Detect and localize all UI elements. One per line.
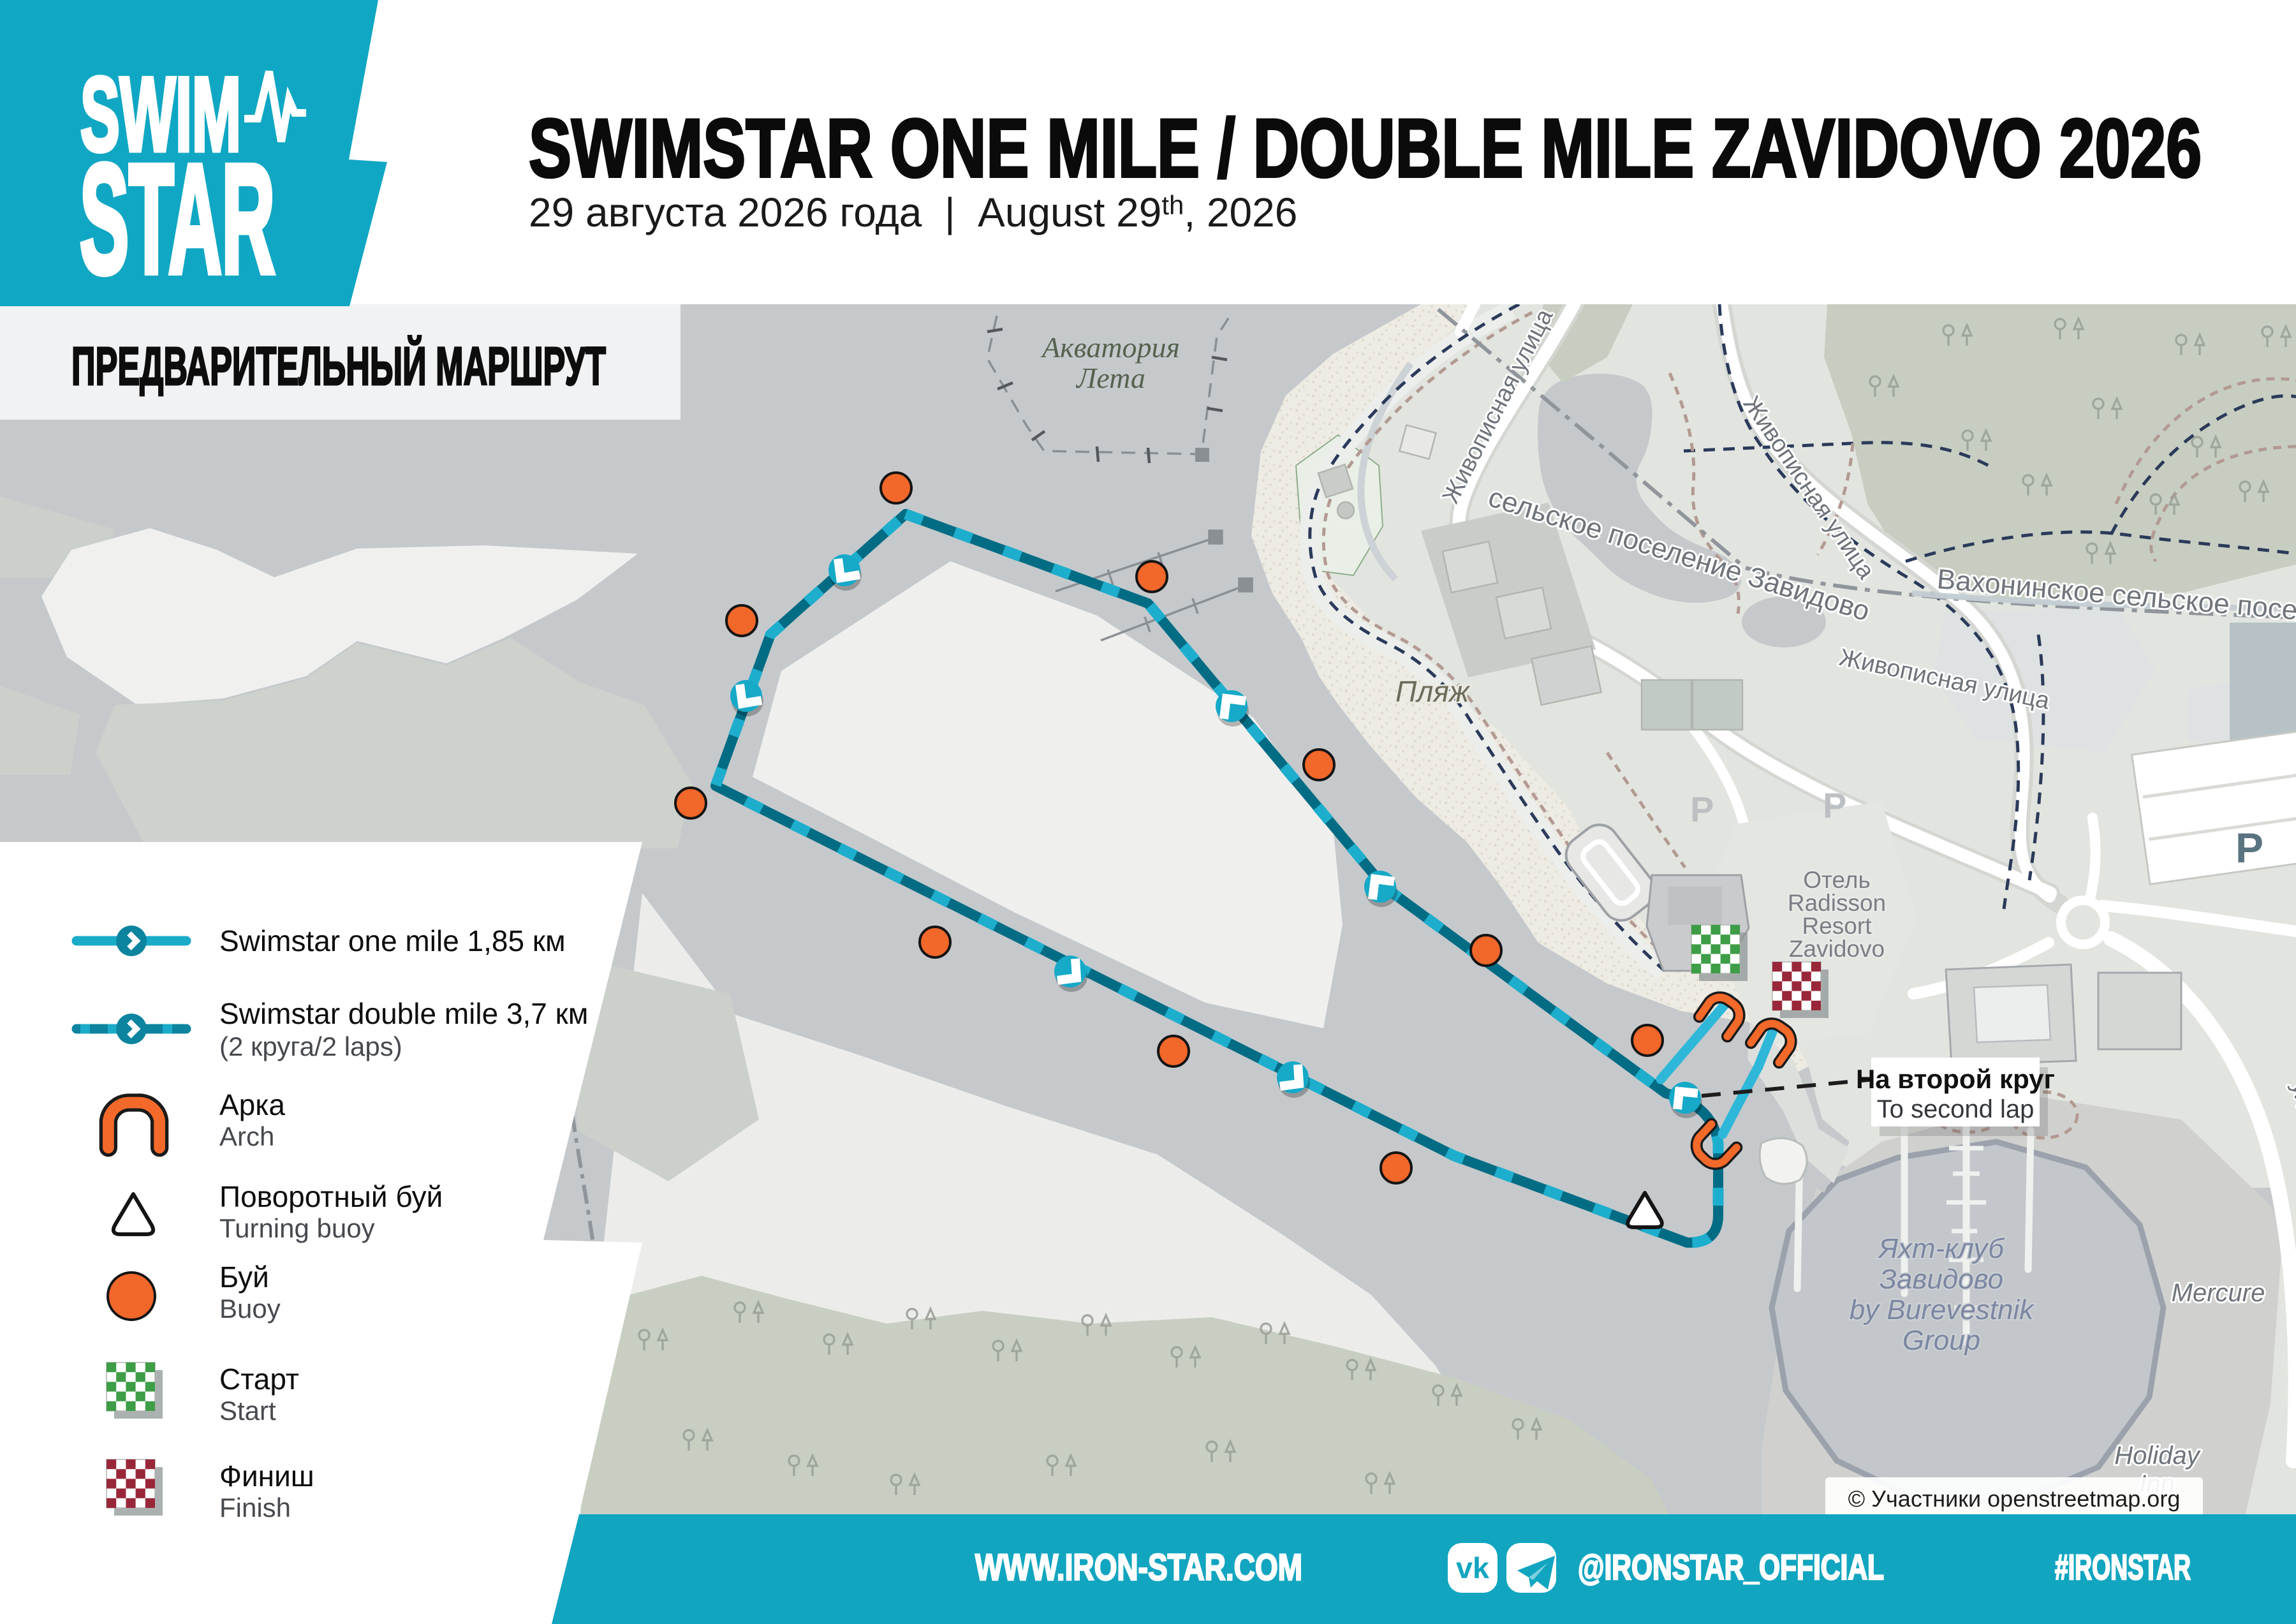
svg-text:Group: Group (1902, 1325, 1980, 1356)
svg-text:STAR: STAR (80, 133, 275, 306)
svg-text:Start: Start (219, 1396, 276, 1426)
svg-text:Буй: Буй (219, 1260, 269, 1294)
svg-text:Buoy: Buoy (219, 1294, 281, 1324)
svg-text:Zavidovo: Zavidovo (1789, 936, 1885, 962)
svg-text:Лета: Лета (1075, 362, 1145, 394)
svg-text:#IRONSTAR: #IRONSTAR (2055, 1547, 2191, 1587)
svg-text:Финиш: Финиш (219, 1459, 314, 1493)
svg-text:WWW.IRON-STAR.COM: WWW.IRON-STAR.COM (975, 1547, 1302, 1588)
svg-text:Арка: Арка (219, 1088, 285, 1121)
svg-text:Swimstar one mile 1,85 км: Swimstar one mile 1,85 км (219, 924, 566, 957)
svg-text:Старт: Старт (219, 1362, 299, 1396)
svg-text:To second lap: To second lap (1877, 1095, 2035, 1123)
svg-text:© Участники openstreetmap.org: © Участники openstreetmap.org (1848, 1486, 2181, 1512)
svg-text:На второй круг: На второй круг (1856, 1064, 2055, 1094)
svg-text:by Burevestnik: by Burevestnik (1850, 1294, 2035, 1325)
svg-text:Отель: Отель (1803, 867, 1871, 893)
svg-text:Пляж: Пляж (1395, 675, 1471, 708)
svg-text:(2 круга/2 laps): (2 круга/2 laps) (219, 1031, 402, 1061)
svg-text:Holiday: Holiday (2114, 1442, 2201, 1470)
svg-text:Swimstar double mile 3,7 км: Swimstar double mile 3,7 км (219, 997, 588, 1030)
svg-text:vk: vk (1456, 1551, 1489, 1584)
svg-text:P: P (1690, 789, 1714, 829)
svg-text:Поворотный буй: Поворотный буй (219, 1180, 443, 1213)
svg-text:Завидово: Завидово (1880, 1264, 2003, 1295)
svg-text:Mercure: Mercure (2172, 1279, 2265, 1307)
svg-text:Radisson: Radisson (1788, 890, 1886, 916)
svg-text:ПРЕДВАРИТЕЛЬНЫЙ МАРШРУТ: ПРЕДВАРИТЕЛЬНЫЙ МАРШРУТ (71, 336, 606, 396)
svg-text:P: P (2235, 824, 2263, 871)
svg-text:Resort: Resort (1802, 913, 1873, 939)
svg-text:Turning buoy: Turning buoy (219, 1213, 375, 1243)
svg-text:Finish: Finish (219, 1493, 291, 1523)
svg-text:Акватория: Акватория (1040, 331, 1180, 364)
svg-text:Arch: Arch (219, 1121, 274, 1151)
svg-text:@IRONSTAR_OFFICIAL: @IRONSTAR_OFFICIAL (1578, 1547, 1884, 1587)
svg-text:P: P (1823, 785, 1846, 825)
svg-text:SWIMSTAR ONE MILE / DOUBLE MIL: SWIMSTAR ONE MILE / DOUBLE MILE ZAVIDOVO… (529, 101, 2202, 195)
svg-text:Яхт-клуб: Яхт-клуб (1878, 1233, 2005, 1264)
